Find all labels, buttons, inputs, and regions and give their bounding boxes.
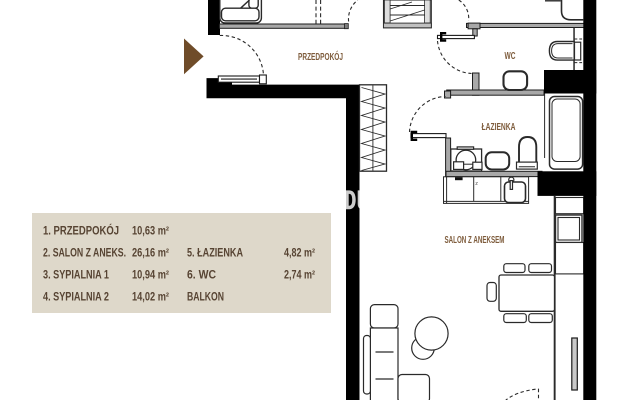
svg-text:5. ŁAZIENKA: 5. ŁAZIENKA (187, 248, 243, 260)
svg-text:1. PRZEDPOKÓJ: 1. PRZEDPOKÓJ (43, 225, 119, 238)
svg-text:WC: WC (505, 50, 516, 62)
svg-text:z: z (475, 181, 478, 187)
svg-text:3. SYPIALNIA 1: 3. SYPIALNIA 1 (43, 270, 109, 282)
svg-text:SALON Z ANEKSEM: SALON Z ANEKSEM (445, 235, 505, 246)
svg-text:ŁAZIENKA: ŁAZIENKA (482, 122, 516, 133)
svg-text:4. SYPIALNIA 2: 4. SYPIALNIA 2 (43, 292, 109, 304)
svg-text:PRZEDPOKÓJ: PRZEDPOKÓJ (298, 50, 343, 63)
svg-text:26,16 m²: 26,16 m² (132, 248, 169, 260)
svg-text:14,02 m²: 14,02 m² (132, 292, 169, 304)
svg-text:2,74 m²: 2,74 m² (284, 270, 315, 282)
svg-text:4,82 m²: 4,82 m² (284, 248, 315, 260)
svg-text:10,63 m²: 10,63 m² (132, 226, 169, 238)
svg-text:BALKON: BALKON (187, 292, 224, 304)
svg-text:2. SALON Z ANEKS.: 2. SALON Z ANEKS. (43, 248, 126, 260)
svg-text:10,94 m²: 10,94 m² (132, 270, 169, 282)
svg-text:6. WC: 6. WC (187, 270, 216, 282)
